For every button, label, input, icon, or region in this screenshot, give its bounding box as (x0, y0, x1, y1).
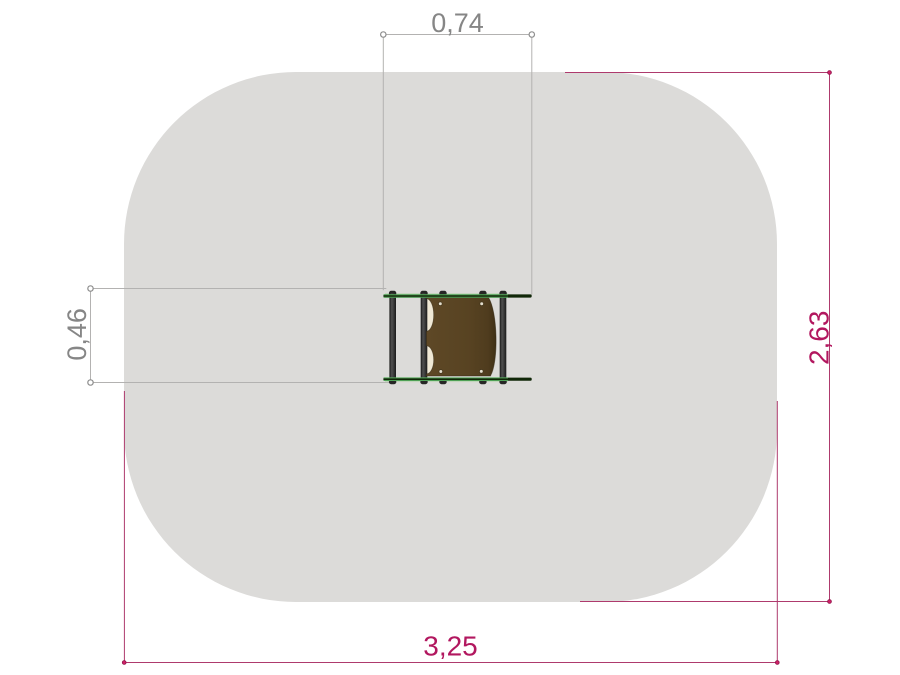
svg-text:2,63: 2,63 (804, 311, 835, 366)
svg-text:0,46: 0,46 (62, 308, 92, 361)
svg-text:3,25: 3,25 (423, 631, 478, 662)
svg-text:0,74: 0,74 (431, 8, 484, 38)
